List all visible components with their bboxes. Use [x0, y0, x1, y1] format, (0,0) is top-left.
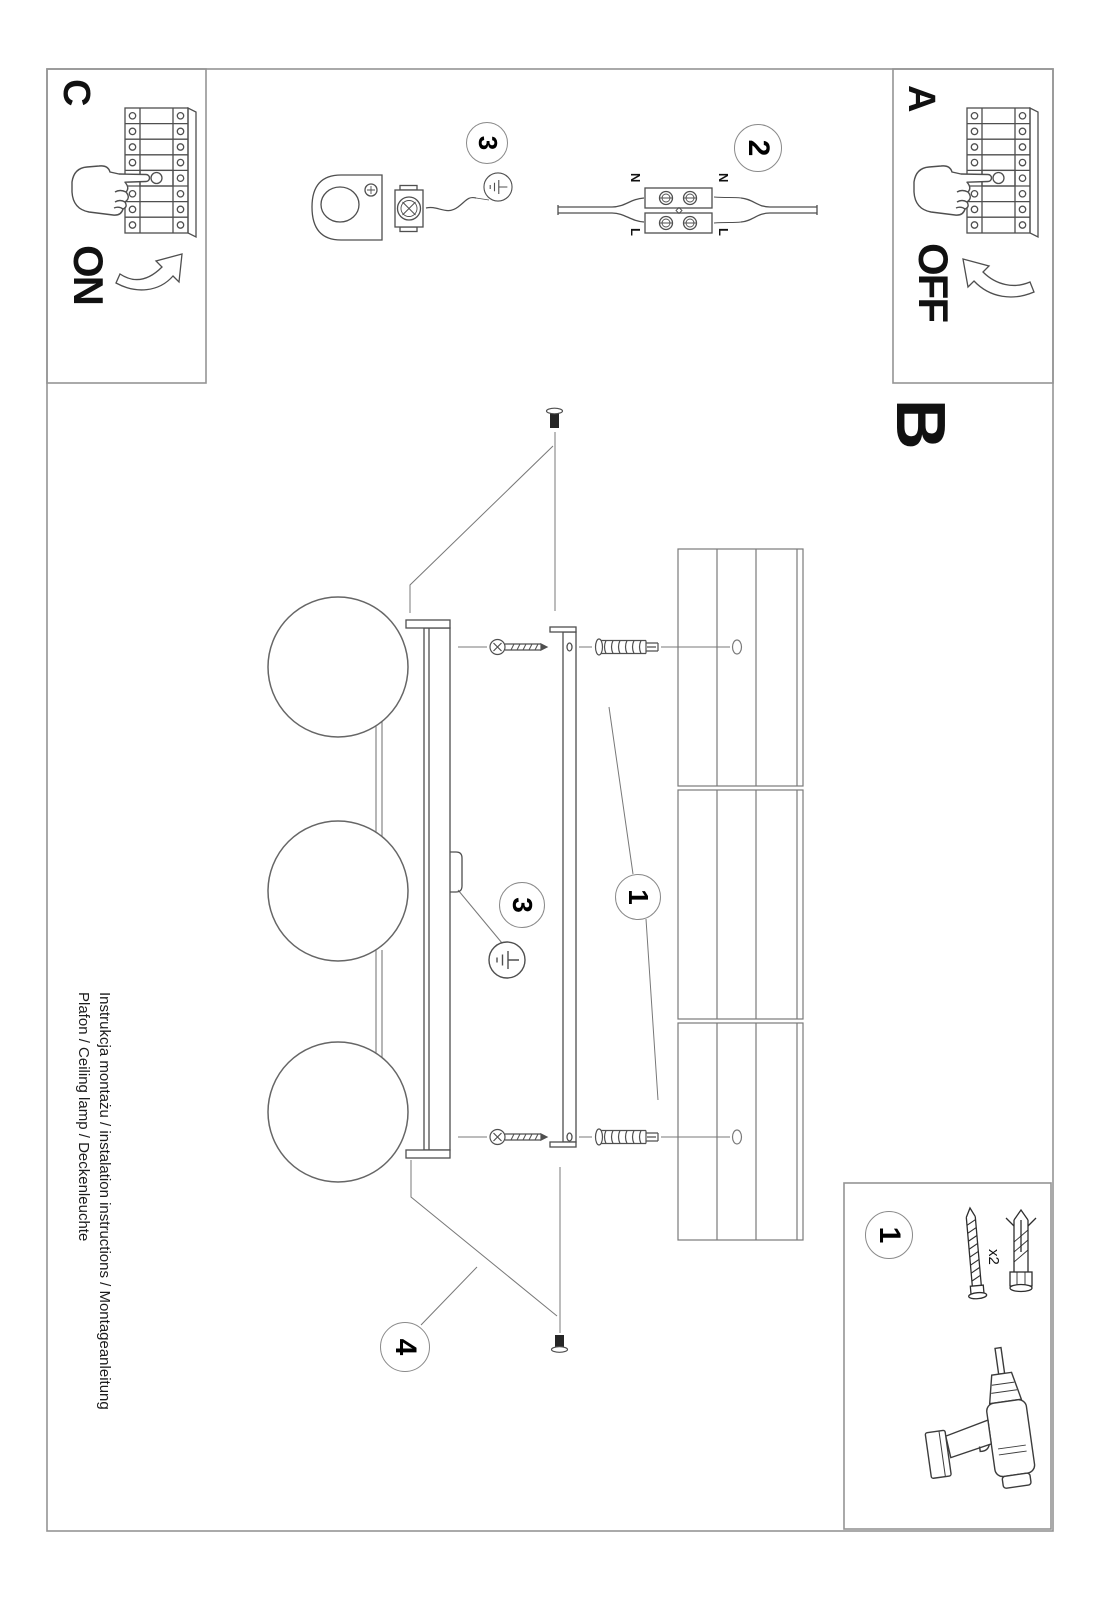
step-2-badge: 2	[734, 124, 782, 172]
footer-title: Instrukcja montażu / instalation instruc…	[96, 992, 113, 1410]
mounting-screw-icon	[490, 640, 547, 655]
cover-bolt-icon	[552, 1335, 568, 1352]
section-label-c: C	[54, 79, 97, 106]
box-c	[47, 69, 206, 383]
diagram-canvas	[0, 0, 1098, 1600]
footer-product: Plafon / Ceiling lamp / Deckenleuchte	[75, 992, 92, 1241]
neutral-label-bottom: N	[628, 173, 643, 182]
instruction-sheet: A B C OFF ON N N L L 2 3 1 3 4 1 x2 Inst…	[0, 0, 1098, 1600]
switch-on-label: ON	[64, 245, 112, 304]
live-label-top: L	[716, 228, 731, 236]
ground-wire	[426, 198, 476, 211]
on-arrow-icon	[116, 254, 182, 290]
box-a	[893, 69, 1053, 383]
page-frame	[47, 69, 1053, 1531]
wall-plug-icon	[1006, 1210, 1036, 1292]
lamp-holder-body	[312, 175, 382, 240]
cable-clip-icon	[450, 852, 462, 892]
step-1-badge-parts: 1	[865, 1211, 913, 1259]
ground-symbol-icon	[489, 942, 525, 978]
screw-quantity-label: x2	[985, 1249, 1002, 1265]
live-label-bottom: L	[628, 228, 643, 236]
glass-globe	[268, 1042, 408, 1182]
rotated-landscape-canvas: A B C OFF ON N N L L 2 3 1 3 4 1 x2 Inst…	[0, 0, 1098, 1600]
off-arrow-icon	[963, 259, 1034, 297]
terminal-live	[645, 213, 712, 233]
step-1-badge-main: 1	[615, 874, 661, 920]
step-4-badge: 4	[380, 1322, 430, 1372]
terminal-block-diagram	[558, 188, 817, 233]
drill-hole	[733, 1130, 742, 1144]
drill-hole	[733, 640, 742, 654]
switch-off-label: OFF	[909, 243, 957, 321]
terminal-neutral	[645, 188, 712, 208]
bare-wire-ends	[714, 197, 741, 223]
step-3-badge: 3	[466, 122, 508, 164]
mounting-bracket	[550, 627, 576, 1147]
wall-plug-icon	[596, 639, 659, 655]
lamp-cable	[558, 205, 612, 215]
screw-icon	[961, 1207, 987, 1299]
drill-icon	[915, 1345, 1037, 1498]
section-label-a: A	[899, 85, 942, 112]
breaker-panel-icon	[125, 108, 196, 237]
glass-globe	[268, 597, 408, 737]
step-3-badge-main: 3	[499, 882, 545, 928]
breaker-panel-icon	[967, 108, 1038, 237]
supply-cable	[770, 205, 817, 215]
lamp-base-bar	[406, 620, 462, 1158]
ceiling-planks	[678, 549, 803, 1240]
pointing-hand-icon	[914, 166, 992, 215]
lamp-holder-diagram	[312, 175, 489, 240]
section-label-b: B	[881, 399, 961, 450]
neutral-label-top: N	[716, 173, 731, 182]
mounting-screw-icon	[490, 1130, 547, 1145]
pointing-hand-icon	[72, 166, 150, 215]
ground-symbol-icon	[484, 173, 512, 201]
cover-bolt-icon	[547, 408, 563, 428]
wall-plug-icon	[596, 1129, 659, 1145]
glass-globe	[268, 821, 408, 961]
